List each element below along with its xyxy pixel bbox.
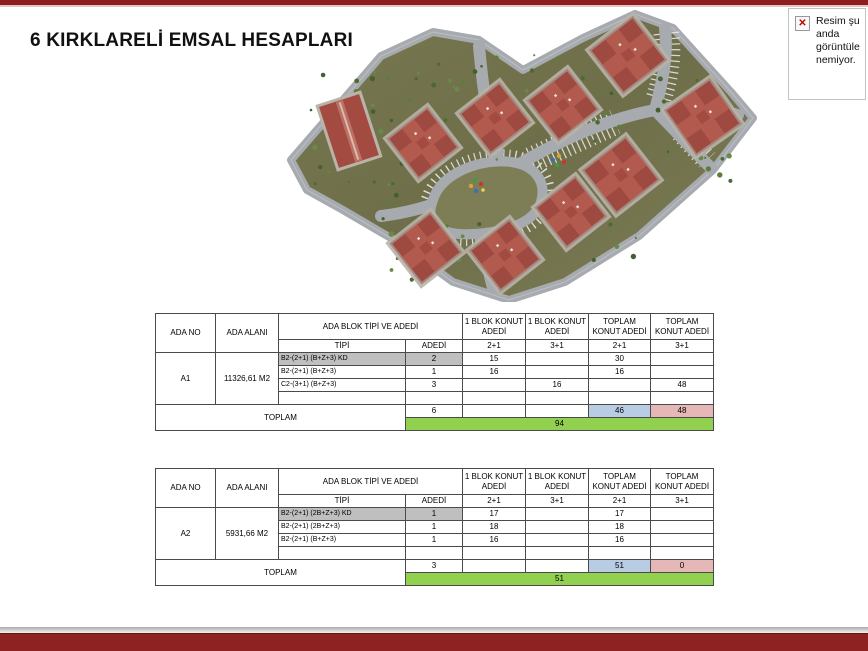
top-accent-bar [0, 0, 868, 7]
header-ada-alani: ADA ALANI [216, 469, 279, 508]
cell-t21 [589, 547, 651, 560]
broken-image-text: Resim şu anda görüntüle nemiyor. [816, 15, 860, 67]
cell-t21: 30 [589, 353, 651, 366]
slide: 6 KIRKLARELİ EMSAL HESAPLARI ✕ Resim şu … [0, 0, 868, 651]
cell-b21 [463, 379, 526, 392]
header-3+1: 3+1 [651, 340, 714, 353]
cell-b31 [526, 366, 589, 379]
cell-adedi [406, 547, 463, 560]
cell-b21: 18 [463, 521, 526, 534]
header-1blok-2: 1 BLOK KONUT ADEDİ [526, 314, 589, 340]
header-3+1: 3+1 [526, 340, 589, 353]
cell-t31 [651, 547, 714, 560]
header-3+1: 3+1 [651, 495, 714, 508]
header-2+1: 2+1 [463, 340, 526, 353]
broken-image-line: Resim şu [816, 15, 860, 28]
cell-adedi: 3 [406, 379, 463, 392]
red-x-icon: ✕ [795, 16, 810, 31]
broken-image-placeholder[interactable]: ✕ Resim şu anda görüntüle nemiyor. [788, 8, 866, 100]
cell-b31 [526, 547, 589, 560]
cell-tipi [279, 547, 406, 560]
cell-tipi: B2-(2+1) (B+Z+3) [279, 366, 406, 379]
cell-genel-toplam: 51 [406, 573, 714, 586]
cell-b21 [463, 547, 526, 560]
cell-tipi: C2-(3+1) (B+Z+3) [279, 379, 406, 392]
table-ada-a1[interactable]: ADA NO ADA ALANI ADA BLOK TİPİ VE ADEDİ … [155, 313, 714, 431]
header-tipi: TİPİ [279, 340, 406, 353]
header-adedi: ADEDİ [406, 340, 463, 353]
broken-image-line: anda [816, 28, 860, 41]
header-toplam-2: TOPLAM KONUT ADEDİ [651, 469, 714, 495]
site-plan-image[interactable] [283, 10, 763, 302]
cell-t21: 16 [589, 534, 651, 547]
cell-adedi: 1 [406, 508, 463, 521]
cell-ada-no: A1 [156, 353, 216, 405]
cell-t31: 48 [651, 379, 714, 392]
cell-b21 [463, 392, 526, 405]
cell-toplam-b31 [526, 405, 589, 418]
header-adedi: ADEDİ [406, 495, 463, 508]
cell-b21: 15 [463, 353, 526, 366]
cell-b21: 16 [463, 534, 526, 547]
cell-t31 [651, 534, 714, 547]
cell-b31 [526, 353, 589, 366]
cell-b31 [526, 521, 589, 534]
cell-toplam-label: TOPLAM [156, 405, 406, 431]
header-2+1: 2+1 [589, 495, 651, 508]
cell-tipi [279, 392, 406, 405]
cell-genel-toplam: 94 [406, 418, 714, 431]
cell-b31: 16 [526, 379, 589, 392]
cell-ada-alani: 11326,61 M2 [216, 353, 279, 405]
cell-toplam-21: 51 [589, 560, 651, 573]
cell-tipi: B2-(2+1) (B+Z+3) KD [279, 353, 406, 366]
header-toplam-2: TOPLAM KONUT ADEDİ [651, 314, 714, 340]
header-ada-no: ADA NO [156, 469, 216, 508]
cell-b31 [526, 392, 589, 405]
cell-b31 [526, 508, 589, 521]
cell-t21: 18 [589, 521, 651, 534]
cell-adedi: 1 [406, 366, 463, 379]
header-ada-alani: ADA ALANI [216, 314, 279, 353]
cell-adedi: 2 [406, 353, 463, 366]
header-ada-no: ADA NO [156, 314, 216, 353]
header-blok-tipi: ADA BLOK TİPİ VE ADEDİ [279, 469, 463, 495]
header-1blok-1: 1 BLOK KONUT ADEDİ [463, 469, 526, 495]
header-2+1: 2+1 [463, 495, 526, 508]
header-toplam-1: TOPLAM KONUT ADEDİ [589, 314, 651, 340]
cell-t31 [651, 521, 714, 534]
cell-b21: 17 [463, 508, 526, 521]
cell-t21 [589, 392, 651, 405]
cell-tipi: B2-(2+1) (2B+Z+3) [279, 521, 406, 534]
cell-toplam-b31 [526, 560, 589, 573]
header-1blok-2: 1 BLOK KONUT ADEDİ [526, 469, 589, 495]
cell-adedi: 1 [406, 534, 463, 547]
cell-adedi [406, 392, 463, 405]
header-tipi: TİPİ [279, 495, 406, 508]
cell-t21: 16 [589, 366, 651, 379]
cell-ada-alani: 5931,66 M2 [216, 508, 279, 560]
broken-image-line: nemiyor. [816, 54, 860, 67]
cell-toplam-adedi: 3 [406, 560, 463, 573]
cell-t31 [651, 392, 714, 405]
cell-b31 [526, 534, 589, 547]
cell-toplam-label: TOPLAM [156, 560, 406, 586]
cell-toplam-31: 0 [651, 560, 714, 573]
header-1blok-1: 1 BLOK KONUT ADEDİ [463, 314, 526, 340]
bottom-accent-bar [0, 633, 868, 651]
cell-toplam-b21 [463, 560, 526, 573]
cell-b21: 16 [463, 366, 526, 379]
cell-t21: 17 [589, 508, 651, 521]
cell-ada-no: A2 [156, 508, 216, 560]
cell-adedi: 1 [406, 521, 463, 534]
broken-image-line: görüntüle [816, 41, 860, 54]
cell-t21 [589, 379, 651, 392]
cell-t31 [651, 366, 714, 379]
header-2+1: 2+1 [589, 340, 651, 353]
cell-toplam-31: 48 [651, 405, 714, 418]
header-blok-tipi: ADA BLOK TİPİ VE ADEDİ [279, 314, 463, 340]
cell-toplam-adedi: 6 [406, 405, 463, 418]
cell-t31 [651, 353, 714, 366]
table-ada-a2[interactable]: ADA NO ADA ALANI ADA BLOK TİPİ VE ADEDİ … [155, 468, 714, 586]
cell-t31 [651, 508, 714, 521]
cell-toplam-21: 46 [589, 405, 651, 418]
header-toplam-1: TOPLAM KONUT ADEDİ [589, 469, 651, 495]
cell-tipi: B2-(2+1) (B+Z+3) [279, 534, 406, 547]
cell-toplam-b21 [463, 405, 526, 418]
cell-tipi: B2-(2+1) (2B+Z+3) KD [279, 508, 406, 521]
header-3+1: 3+1 [526, 495, 589, 508]
